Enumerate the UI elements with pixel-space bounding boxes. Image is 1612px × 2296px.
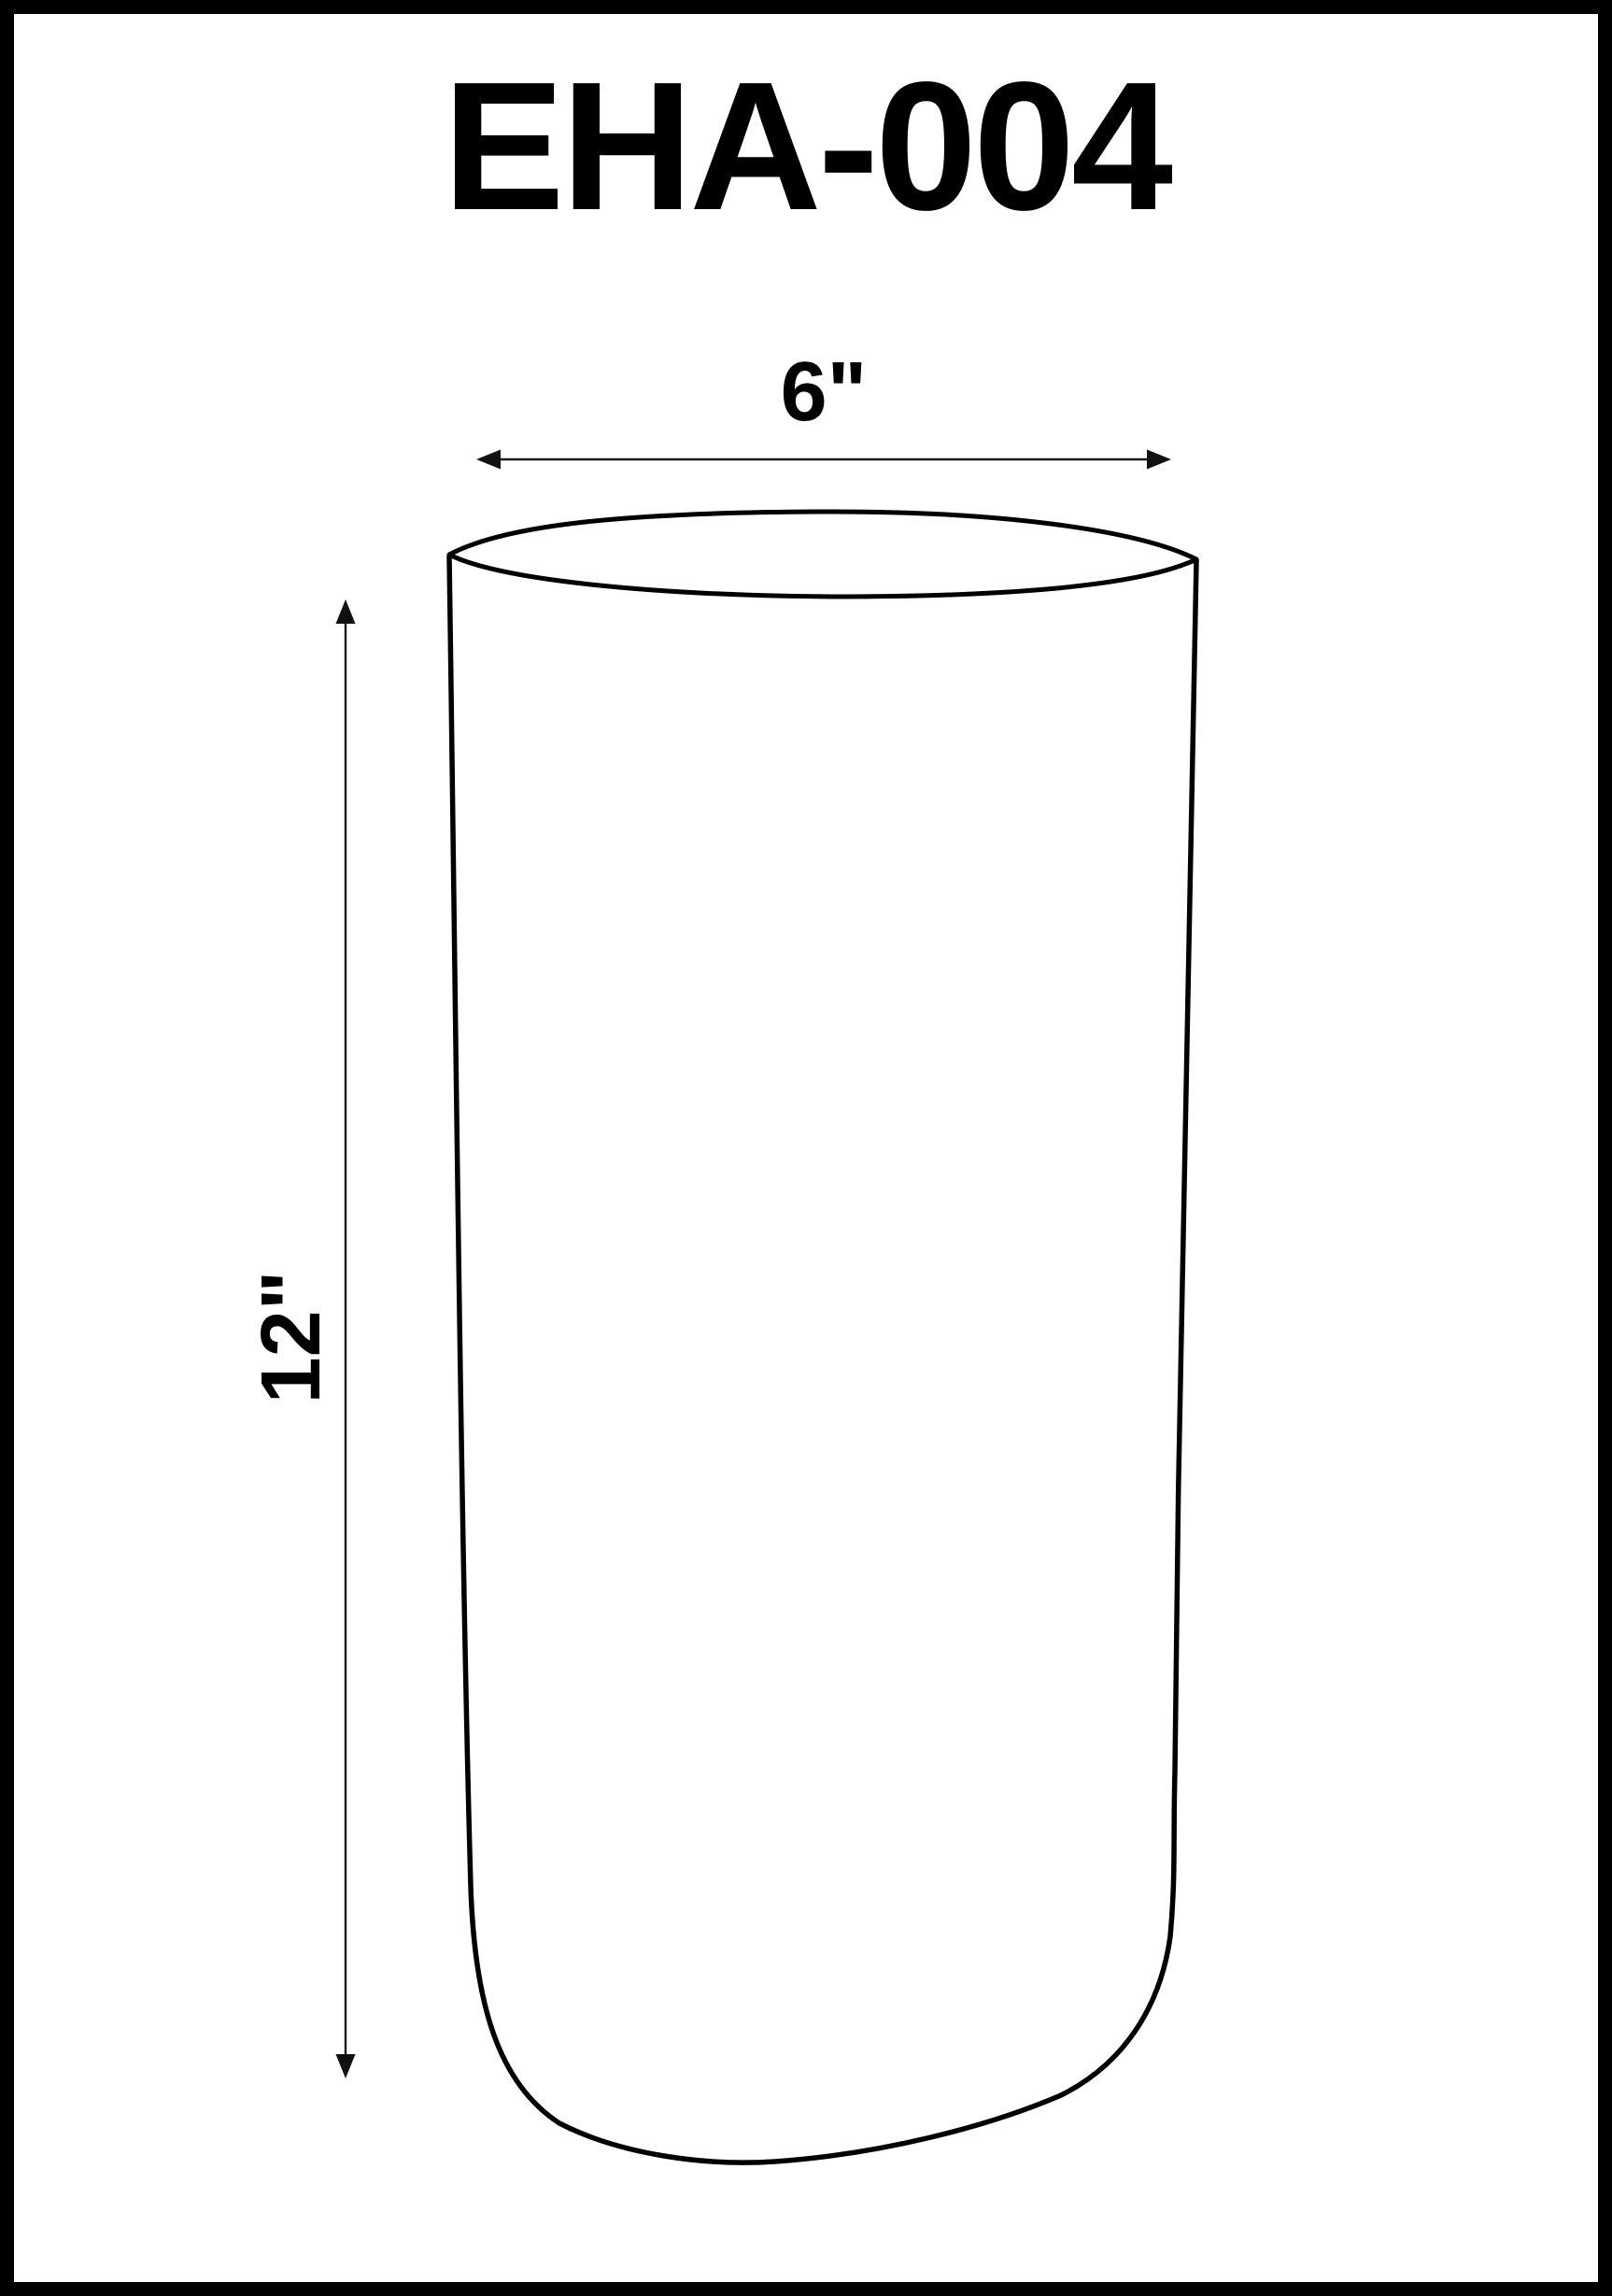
cylinder-body-outline xyxy=(449,556,1196,2162)
height-dimension-line xyxy=(336,599,356,2078)
width-dimension-line xyxy=(476,450,1171,470)
cylinder-drawing xyxy=(14,14,1612,2296)
arrowhead-up-icon xyxy=(336,599,356,624)
cylinder-top-ellipse xyxy=(449,512,1196,597)
arrowhead-left-icon xyxy=(476,450,501,470)
arrowhead-right-icon xyxy=(1147,450,1171,470)
arrowhead-down-icon xyxy=(336,2054,356,2078)
drawing-sheet: EHA-004 6" 12" xyxy=(0,0,1612,2296)
